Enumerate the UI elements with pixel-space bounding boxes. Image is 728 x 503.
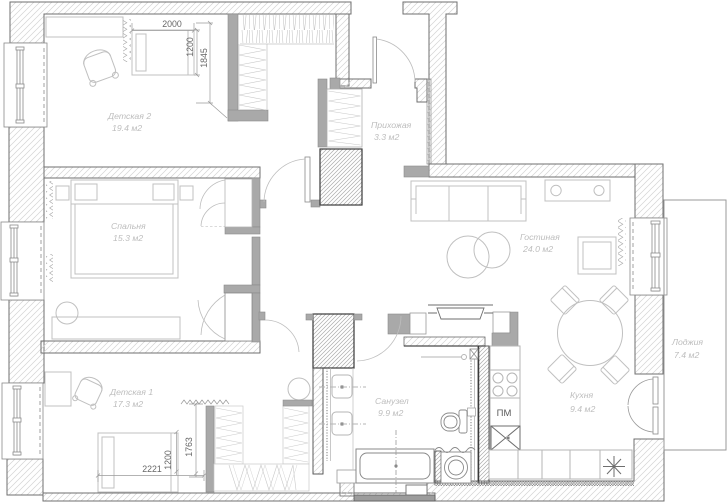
svg-text:Детская 2: Детская 2 xyxy=(107,111,151,121)
svg-text:19.4 м2: 19.4 м2 xyxy=(112,123,142,133)
svg-text:Санузел: Санузел xyxy=(375,396,409,406)
svg-text:1845: 1845 xyxy=(199,48,209,68)
svg-text:1763: 1763 xyxy=(184,437,194,457)
svg-text:ПМ: ПМ xyxy=(497,408,512,419)
svg-text:24.0 м2: 24.0 м2 xyxy=(522,244,553,254)
svg-text:Прихожая: Прихожая xyxy=(371,120,412,130)
svg-text:2221: 2221 xyxy=(142,464,162,474)
svg-text:Спальня: Спальня xyxy=(111,221,146,231)
svg-text:15.3 м2: 15.3 м2 xyxy=(113,233,143,243)
svg-text:Лоджия: Лоджия xyxy=(671,337,703,347)
svg-text:2000: 2000 xyxy=(162,19,182,29)
svg-text:Детская 1: Детская 1 xyxy=(109,387,153,397)
svg-text:9.9 м2: 9.9 м2 xyxy=(378,408,403,418)
svg-text:1200: 1200 xyxy=(185,37,195,57)
svg-text:9.4 м2: 9.4 м2 xyxy=(570,404,595,414)
svg-text:Кухня: Кухня xyxy=(570,390,593,400)
svg-text:1200: 1200 xyxy=(163,450,173,470)
svg-text:3.3 м2: 3.3 м2 xyxy=(374,132,399,142)
svg-text:7.4 м2: 7.4 м2 xyxy=(674,350,699,360)
svg-text:17.3 м2: 17.3 м2 xyxy=(113,399,143,409)
svg-text:Гостиная: Гостиная xyxy=(520,232,560,242)
